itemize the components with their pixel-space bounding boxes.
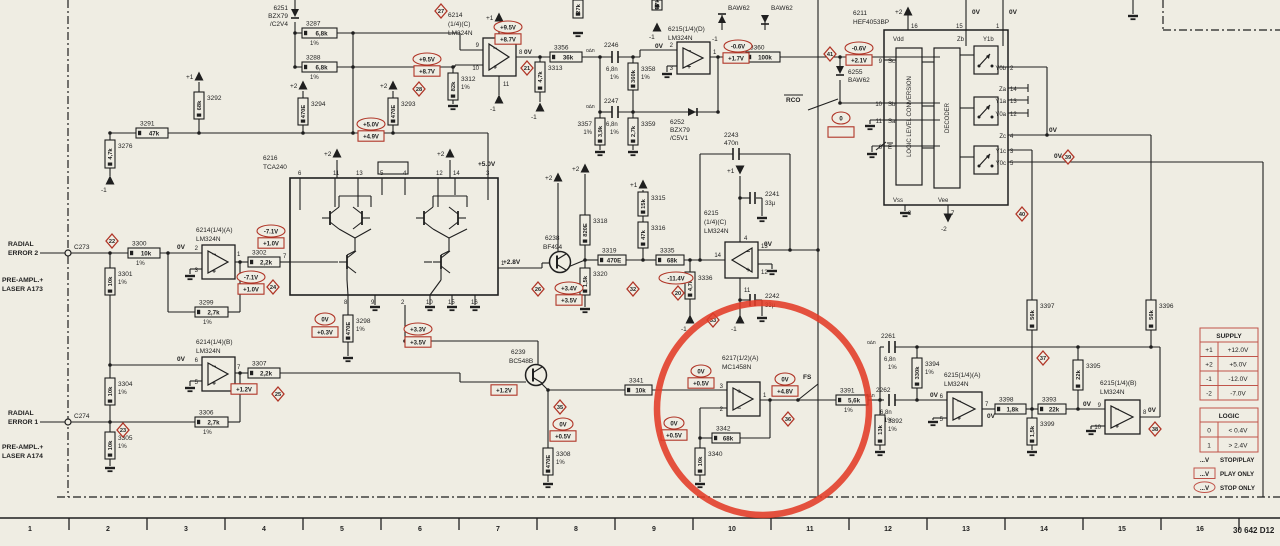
svg-text:0V: 0V (1083, 401, 1092, 408)
svg-text:40: 40 (1019, 212, 1025, 218)
svg-text:1%: 1% (888, 365, 897, 371)
svg-text:STOP/PLAY: STOP/PLAY (1220, 457, 1255, 464)
svg-text:1,5k: 1,5k (583, 275, 589, 287)
svg-text:HEF4053BP: HEF4053BP (853, 19, 889, 26)
svg-text:14: 14 (714, 253, 721, 259)
svg-text:BAW62: BAW62 (848, 77, 870, 84)
play-only-callout (828, 127, 854, 137)
resistor-edge: 27k (573, 0, 583, 18)
svg-text:0V: 0V (559, 422, 566, 428)
svg-text:3308: 3308 (556, 451, 571, 458)
svg-text:Sb: Sb (888, 102, 896, 108)
svg-text:1%: 1% (310, 41, 319, 47)
svg-text:+2: +2 (324, 151, 332, 158)
svg-text:-1: -1 (712, 36, 718, 43)
svg-text:0V: 0V (1049, 127, 1058, 134)
svg-text:0V: 0V (781, 377, 788, 383)
svg-text:3298: 3298 (356, 318, 371, 325)
svg-text:RADIAL: RADIAL (8, 410, 34, 417)
svg-text:0V: 0V (987, 413, 996, 420)
svg-text:+2: +2 (895, 9, 903, 16)
svg-text:-7.1V: -7.1V (244, 275, 258, 281)
svg-text:8: 8 (574, 526, 578, 533)
svg-text:LM324N: LM324N (196, 348, 221, 355)
svg-text:(1/4)(C): (1/4)(C) (448, 21, 470, 28)
paper-background (0, 0, 1280, 546)
svg-text:1: 1 (1207, 443, 1211, 450)
svg-text:BC548B: BC548B (509, 358, 533, 365)
svg-text:37: 37 (1040, 356, 1046, 362)
svg-text:33µ: 33µ (765, 201, 776, 207)
svg-text:2243: 2243 (724, 132, 739, 139)
svg-text:100k: 100k (758, 55, 772, 62)
svg-text:LM324N: LM324N (668, 35, 693, 42)
svg-text:+1.2V: +1.2V (496, 388, 512, 394)
svg-text:2242: 2242 (765, 293, 780, 300)
svg-text:27k: 27k (576, 3, 582, 13)
svg-text:RCO: RCO (786, 97, 800, 104)
svg-text:1%: 1% (136, 261, 145, 267)
svg-text:Vdd: Vdd (893, 37, 904, 43)
svg-text:3312: 3312 (461, 76, 476, 83)
svg-text:-2: -2 (941, 226, 947, 233)
svg-text:3358: 3358 (641, 66, 656, 73)
svg-text:3304: 3304 (118, 381, 133, 388)
svg-text:6215: 6215 (704, 210, 719, 217)
svg-text:3359: 3359 (641, 121, 656, 128)
svg-text:3,9k: 3,9k (598, 125, 604, 137)
play-only-callout: +4.8V (772, 386, 798, 396)
svg-text:2,2k: 2,2k (260, 371, 273, 378)
svg-text:38: 38 (1152, 427, 1158, 433)
svg-text:36: 36 (785, 417, 791, 423)
svg-text:+: + (737, 388, 741, 395)
svg-text:0V: 0V (670, 421, 677, 427)
svg-text:360k: 360k (631, 69, 637, 83)
svg-text:11: 11 (806, 526, 814, 533)
svg-text:FS: FS (803, 374, 812, 381)
svg-text:4,7k: 4,7k (108, 148, 114, 160)
svg-text:2,7k: 2,7k (207, 310, 220, 317)
svg-text:6214: 6214 (448, 12, 463, 19)
svg-text:−: − (687, 48, 691, 55)
svg-text:68k: 68k (197, 100, 203, 110)
svg-text:−: − (957, 398, 961, 405)
svg-text:-7.1V: -7.1V (264, 229, 278, 235)
svg-text:+1: +1 (727, 168, 735, 175)
svg-text:5: 5 (340, 526, 344, 533)
svg-text:0V: 0V (1148, 407, 1157, 414)
voltage-label: 0V (177, 356, 186, 363)
svg-text:PRE-AMPL.+: PRE-AMPL.+ (2, 277, 43, 284)
svg-text:/C5V1: /C5V1 (670, 135, 688, 142)
svg-text:3394: 3394 (925, 361, 940, 368)
svg-text:3313: 3313 (548, 65, 563, 72)
play-only-callout: +0.5V (550, 431, 576, 441)
svg-text:-1: -1 (731, 326, 737, 333)
svg-text:10k: 10k (108, 276, 114, 286)
svg-text:Y1a: Y1a (995, 99, 1006, 105)
svg-text:1%: 1% (610, 75, 619, 81)
voltage-label: +5.0V (478, 161, 496, 168)
svg-text:+2: +2 (437, 151, 445, 158)
stop-only-callout: +9.5V (413, 53, 441, 65)
svg-text:+2.1V: +2.1V (851, 58, 867, 64)
svg-text:−: − (212, 363, 216, 370)
svg-text:-0.6V: -0.6V (731, 44, 745, 50)
svg-text:10k: 10k (108, 440, 114, 450)
svg-text:41: 41 (827, 52, 833, 58)
svg-text:6: 6 (418, 526, 422, 533)
svg-text:2262: 2262 (876, 387, 891, 394)
svg-text:10: 10 (472, 66, 479, 72)
stop-only-callout: 0V (664, 417, 684, 429)
svg-text:1%: 1% (310, 75, 319, 81)
svg-text:3302: 3302 (252, 250, 267, 257)
svg-text:+5.0V: +5.0V (363, 122, 379, 128)
svg-text:3356: 3356 (554, 45, 569, 52)
svg-text:1%: 1% (356, 327, 365, 333)
svg-text:−: − (746, 249, 750, 256)
svg-text:6,8n: 6,8n (884, 357, 896, 363)
svg-text:6215(1/4)(A): 6215(1/4)(A) (944, 372, 981, 379)
svg-text:3306: 3306 (199, 410, 214, 417)
svg-text:10k: 10k (141, 251, 152, 258)
voltage-label: 0V (987, 413, 996, 420)
svg-text:-12.0V: -12.0V (1228, 376, 1248, 383)
svg-text:+3.5V: +3.5V (410, 340, 426, 346)
svg-text:+12.0V: +12.0V (1228, 347, 1249, 354)
svg-text:-0.6V: -0.6V (852, 46, 866, 52)
svg-text:20: 20 (675, 291, 681, 297)
voltage-label: 0V (1054, 153, 1063, 160)
svg-text:Za: Za (999, 87, 1007, 93)
svg-text:3316: 3316 (651, 225, 666, 232)
svg-text:−: − (737, 405, 741, 412)
svg-text:0V: 0V (972, 9, 981, 16)
svg-text:6211: 6211 (853, 10, 867, 17)
svg-text:6,8n: 6,8n (606, 122, 618, 128)
svg-text:24: 24 (270, 285, 277, 291)
svg-text:3399: 3399 (1040, 421, 1055, 428)
svg-text:3393: 3393 (1042, 397, 1057, 404)
svg-text:BZX79: BZX79 (670, 127, 690, 134)
svg-text:26: 26 (535, 287, 541, 293)
svg-text:1%: 1% (884, 418, 893, 424)
svg-text:10: 10 (426, 300, 433, 306)
svg-text:...V: ...V (1200, 457, 1210, 464)
svg-text:16: 16 (911, 24, 918, 30)
svg-text:3307: 3307 (252, 361, 267, 368)
svg-text:3336: 3336 (698, 275, 713, 282)
svg-text:LASER A173: LASER A173 (2, 286, 43, 293)
svg-text:DECODER: DECODER (945, 102, 951, 133)
stop-only-callout: 0 (832, 112, 850, 124)
stop-only-callout: +5.0V (357, 118, 385, 130)
svg-text:10: 10 (875, 102, 882, 108)
svg-text:3335: 3335 (660, 248, 675, 255)
svg-text:Sc: Sc (888, 59, 895, 65)
svg-text:1%: 1% (203, 430, 212, 436)
svg-text:o∆n: o∆n (586, 104, 595, 110)
svg-text:+: + (1115, 423, 1119, 430)
stop-only-callout: -11.4V (659, 272, 693, 284)
voltage-label: 0V (972, 9, 981, 16)
svg-text:LASER A174: LASER A174 (2, 453, 43, 460)
svg-text:4,7k: 4,7k (538, 71, 544, 83)
svg-text:Zc: Zc (999, 134, 1006, 140)
svg-text:0V: 0V (697, 369, 704, 375)
svg-text:3319: 3319 (602, 248, 617, 255)
svg-text:1%: 1% (203, 320, 212, 326)
svg-text:+1.7V: +1.7V (728, 56, 744, 62)
svg-text:3315: 3315 (651, 195, 666, 202)
svg-text:6255: 6255 (848, 69, 863, 76)
svg-text:2246: 2246 (604, 42, 619, 49)
svg-text:C274: C274 (74, 413, 90, 420)
svg-text:3397: 3397 (1040, 303, 1055, 310)
svg-text:3288: 3288 (306, 55, 321, 62)
svg-text:< 0.4V: < 0.4V (1229, 428, 1249, 435)
voltage-label: 0V (177, 244, 186, 251)
svg-text:14: 14 (1010, 87, 1017, 93)
svg-text:Vee: Vee (938, 198, 949, 204)
svg-text:BAW62: BAW62 (771, 5, 793, 12)
play-only-callout: +3.5V (556, 295, 582, 305)
svg-text:0V: 0V (321, 317, 328, 323)
svg-text:32: 32 (630, 287, 636, 293)
svg-text:820E: 820E (583, 223, 589, 237)
stop-only-callout: 0V (553, 418, 573, 430)
svg-text:Zb: Zb (957, 37, 965, 43)
play-only-callout: +1.2V (231, 384, 257, 394)
svg-text:470E: 470E (546, 455, 552, 469)
svg-text:C273: C273 (74, 244, 90, 251)
svg-text:-1: -1 (490, 106, 496, 113)
svg-text:6214(1/4)(B): 6214(1/4)(B) (196, 339, 233, 346)
svg-text:2247: 2247 (604, 98, 619, 105)
stop-only-callout: +9.5V (494, 21, 522, 33)
svg-text:RADIAL: RADIAL (8, 241, 34, 248)
svg-text:7: 7 (496, 526, 500, 533)
svg-text:+2.8V: +2.8V (503, 259, 521, 266)
svg-text:+2: +2 (545, 175, 553, 182)
svg-text:56k: 56k (1030, 309, 1036, 319)
svg-text:+3.3V: +3.3V (410, 327, 426, 333)
stop-only-callout: 0V (691, 365, 711, 377)
svg-text:Y1b: Y1b (983, 37, 994, 43)
svg-text:3305: 3305 (118, 435, 133, 442)
svg-text:LM324N: LM324N (448, 30, 473, 37)
svg-text:(1/4)(C): (1/4)(C) (704, 219, 726, 226)
svg-text:+3.4V: +3.4V (561, 286, 577, 292)
svg-text:SUPPLY: SUPPLY (1216, 333, 1242, 340)
svg-text:6,8n: 6,8n (606, 67, 618, 73)
svg-text:3341: 3341 (629, 378, 644, 385)
svg-text:+0.5V: +0.5V (666, 433, 682, 439)
svg-text:+2: +2 (380, 83, 388, 90)
svg-text:68k: 68k (667, 258, 678, 265)
svg-text:TCA240: TCA240 (263, 164, 287, 171)
svg-text:27: 27 (438, 9, 444, 15)
svg-text:1%: 1% (888, 427, 897, 433)
svg-text:3320: 3320 (593, 271, 608, 278)
svg-text:10: 10 (728, 526, 736, 533)
voltage-label: 0V (1148, 407, 1157, 414)
svg-text:470E: 470E (301, 105, 307, 119)
svg-text:10: 10 (1094, 425, 1101, 431)
svg-text:LM324N: LM324N (196, 236, 221, 243)
play-only-callout: +4.9V (358, 131, 384, 141)
svg-text:o∆n: o∆n (867, 340, 876, 346)
svg-text:0V: 0V (655, 43, 664, 50)
svg-text:11: 11 (333, 171, 340, 177)
svg-text:ERROR 2: ERROR 2 (8, 250, 38, 257)
svg-text:2,2k: 2,2k (260, 260, 273, 267)
voltage-label: 0V (930, 392, 939, 399)
voltage-label: 0V (1049, 127, 1058, 134)
svg-text:13: 13 (1010, 99, 1017, 105)
stop-only-callout: 0V (315, 313, 335, 325)
svg-text:-1: -1 (101, 187, 107, 194)
svg-text:3291: 3291 (140, 121, 155, 128)
svg-text:6215(1/4)(D): 6215(1/4)(D) (668, 26, 705, 33)
svg-text:0V: 0V (524, 49, 533, 56)
svg-text:6,8n: 6,8n (880, 410, 892, 416)
svg-text:21: 21 (524, 66, 530, 72)
svg-text:Y0a: Y0a (995, 112, 1006, 118)
svg-text:82k: 82k (451, 81, 457, 91)
svg-text:2: 2 (106, 526, 110, 533)
svg-text:1%: 1% (641, 75, 650, 81)
svg-text:3294: 3294 (311, 101, 326, 108)
svg-text:+1: +1 (630, 182, 638, 189)
svg-text:6214(1/4)(A): 6214(1/4)(A) (196, 227, 233, 234)
svg-text:6217(1/2)(A): 6217(1/2)(A) (722, 355, 759, 362)
svg-text:36k: 36k (563, 55, 574, 62)
svg-text:−: − (212, 251, 216, 258)
svg-text:330k: 330k (915, 366, 921, 380)
svg-text:1%: 1% (925, 370, 934, 376)
svg-text:1%: 1% (118, 280, 127, 286)
play-only-callout: +0.5V (688, 378, 714, 388)
svg-text:+0.3V: +0.3V (317, 330, 333, 336)
voltage-label: 0V (1083, 401, 1092, 408)
svg-text:16: 16 (471, 300, 478, 306)
svg-text:3318: 3318 (593, 218, 608, 225)
svg-text:12: 12 (1010, 112, 1017, 118)
svg-text:...V: ...V (1200, 485, 1210, 492)
svg-text:+2: +2 (1205, 362, 1213, 369)
svg-text:3287: 3287 (306, 21, 321, 28)
svg-text:STOP ONLY: STOP ONLY (1220, 485, 1256, 492)
svg-text:/C2V4: /C2V4 (270, 21, 288, 28)
svg-text:6252: 6252 (670, 119, 685, 126)
svg-text:Vss: Vss (893, 198, 903, 204)
play-only-callout: +8.7V (495, 34, 521, 44)
svg-text:−: − (493, 45, 497, 52)
svg-text:1,5k: 1,5k (1030, 425, 1036, 437)
svg-text:3357: 3357 (578, 121, 593, 128)
svg-text:6215(1/4)(B): 6215(1/4)(B) (1100, 380, 1137, 387)
play-only-callout: +1.0V (258, 238, 284, 248)
svg-text:LM324N: LM324N (944, 381, 969, 388)
svg-text:10k: 10k (698, 456, 704, 466)
play-only-callout: +1.2V (491, 385, 517, 395)
svg-text:ERROR 1: ERROR 1 (8, 419, 38, 426)
svg-text:470E: 470E (607, 258, 621, 265)
stop-only-callout: -7.1V (257, 225, 285, 237)
svg-text:30 642 D12: 30 642 D12 (1233, 526, 1275, 535)
svg-text:0V: 0V (1054, 153, 1063, 160)
svg-text:+1: +1 (486, 15, 494, 22)
svg-text:+: + (493, 64, 497, 71)
svg-text:-1: -1 (1206, 376, 1212, 383)
svg-text:3299: 3299 (199, 300, 214, 307)
svg-text:Y1c: Y1c (996, 149, 1006, 155)
play-only-callout: +3.5V (405, 337, 431, 347)
svg-text:1%: 1% (118, 444, 127, 450)
svg-text:56k: 56k (1149, 309, 1155, 319)
svg-text:+: + (957, 415, 961, 422)
svg-text:1,8k: 1,8k (1006, 407, 1019, 414)
svg-text:47k: 47k (641, 229, 647, 239)
svg-text:3342: 3342 (716, 426, 731, 433)
svg-text:15: 15 (956, 24, 963, 30)
svg-text:470E: 470E (391, 105, 397, 119)
stop-only-callout: -7.1V (237, 271, 265, 283)
svg-text:2,7k: 2,7k (631, 125, 637, 137)
svg-text:3340: 3340 (708, 451, 723, 458)
svg-text:+8.7V: +8.7V (419, 69, 435, 75)
svg-text:0: 0 (1207, 428, 1211, 435)
svg-text:6239: 6239 (511, 349, 526, 356)
svg-text:1%: 1% (610, 130, 619, 136)
svg-text:11: 11 (876, 119, 883, 125)
svg-text:3396: 3396 (1159, 303, 1174, 310)
svg-text:PLAY ONLY: PLAY ONLY (1220, 471, 1255, 478)
svg-text:-11.4V: -11.4V (667, 276, 684, 282)
svg-text:13: 13 (356, 171, 363, 177)
play-only-callout: +0.3V (312, 327, 338, 337)
voltage-label: 0V (1009, 9, 1018, 16)
svg-text:Sa: Sa (888, 119, 896, 125)
svg-text:-2: -2 (1206, 391, 1212, 398)
svg-text:LM324N: LM324N (704, 228, 729, 235)
svg-text:+5.0V: +5.0V (478, 161, 496, 168)
svg-text:3398: 3398 (999, 397, 1014, 404)
svg-text:3276: 3276 (118, 143, 133, 150)
play-only-callout: +1.7V (723, 53, 749, 63)
svg-text:14: 14 (453, 171, 460, 177)
svg-text:3: 3 (184, 526, 188, 533)
svg-text:+1: +1 (1205, 347, 1213, 354)
svg-text:> 2.4V: > 2.4V (1229, 443, 1249, 450)
svg-text:+: + (212, 380, 216, 387)
radial-servo-schematic: +1+2+2+2+2+2+2+1+1+2-2-1-1-1-1-1+1-147k3… (0, 0, 1280, 546)
svg-text:10k: 10k (635, 388, 646, 395)
svg-text:28: 28 (416, 87, 422, 93)
svg-text:+: + (687, 64, 691, 71)
stop-only-callout: 0V (775, 373, 795, 385)
svg-text:1%: 1% (118, 390, 127, 396)
svg-text:−: − (1115, 406, 1119, 413)
svg-text:39: 39 (1065, 155, 1071, 161)
svg-text:9: 9 (652, 526, 656, 533)
svg-text:14: 14 (1040, 526, 1048, 533)
svg-text:0V: 0V (1009, 9, 1018, 16)
svg-text:+8.7V: +8.7V (500, 37, 516, 43)
